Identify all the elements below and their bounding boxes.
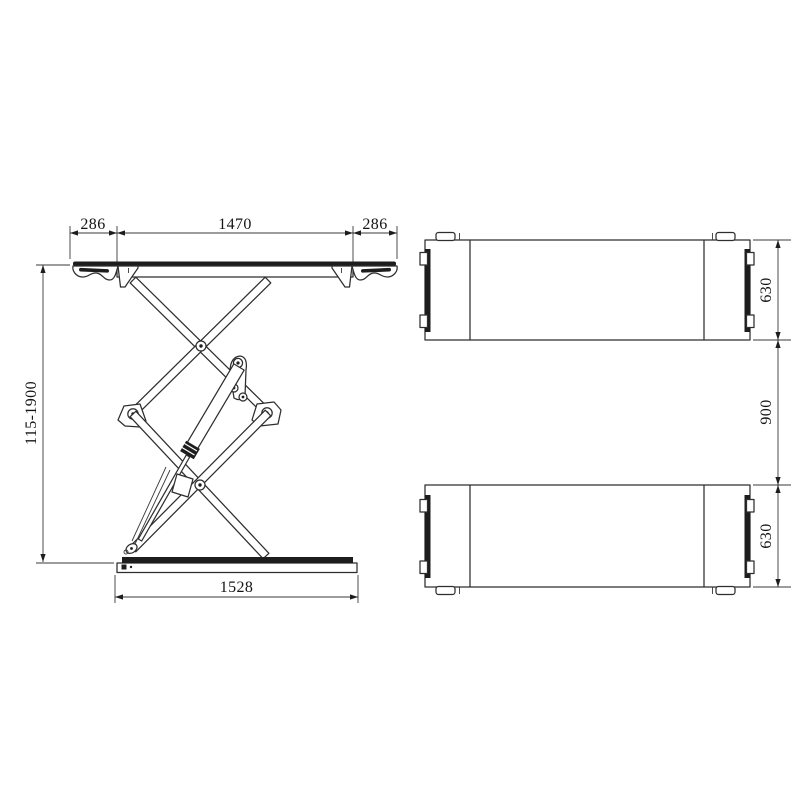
scissor-mechanism: [118, 277, 281, 559]
side-tab: [420, 253, 428, 266]
base-plate: [117, 563, 357, 573]
drawing-page: 286 1470 286 115-1900: [0, 0, 800, 800]
front-view: 286 1470 286 115-1900: [23, 216, 397, 603]
base-top-bar: [122, 557, 353, 563]
rubber-pad: [716, 233, 735, 241]
dim-label-top-left: 286: [80, 216, 105, 233]
scissor-lift-drawing: 286 1470 286 115-1900: [0, 0, 800, 800]
dim-label-top-right: 286: [362, 216, 387, 233]
side-tab: [747, 561, 755, 574]
dim-label-platform-width-top: 630: [758, 277, 775, 302]
side-tab: [747, 500, 755, 513]
platform-body: [117, 266, 353, 277]
plan-platform-bottom: [420, 485, 754, 595]
rubber-pad: [436, 233, 455, 241]
cylinder-body: [186, 364, 244, 451]
dim-label-lift-height: 115-1900: [23, 381, 40, 445]
dimension-base-length: 1528: [115, 575, 358, 603]
dim-label-platform-width-bottom: 630: [758, 523, 775, 548]
left-ramp: [73, 266, 118, 280]
side-tab: [420, 500, 428, 513]
side-tab: [420, 315, 428, 328]
base-frame: [117, 557, 357, 573]
right-ramp: [352, 266, 397, 280]
plan-view: 630 900 630: [420, 233, 791, 595]
dim-label-base-length: 1528: [220, 579, 254, 596]
platform-side-view: [73, 262, 397, 288]
side-tab: [420, 561, 428, 574]
platform-top-bar: [73, 262, 396, 267]
rubber-pad: [436, 587, 455, 595]
dimension-top-chain: 286 1470 286: [70, 216, 397, 262]
dimension-lift-height: 115-1900: [23, 265, 114, 563]
dimension-right-chain: 630 900 630: [753, 240, 791, 587]
rubber-pad: [716, 587, 735, 595]
platform-outline: [425, 240, 750, 340]
side-tab: [747, 315, 755, 328]
dim-label-platform-length: 1470: [218, 216, 252, 233]
platform-outline: [425, 485, 750, 587]
dim-label-track-gap: 900: [758, 399, 775, 424]
plan-platform-top: [420, 233, 754, 341]
side-tab: [747, 253, 755, 266]
